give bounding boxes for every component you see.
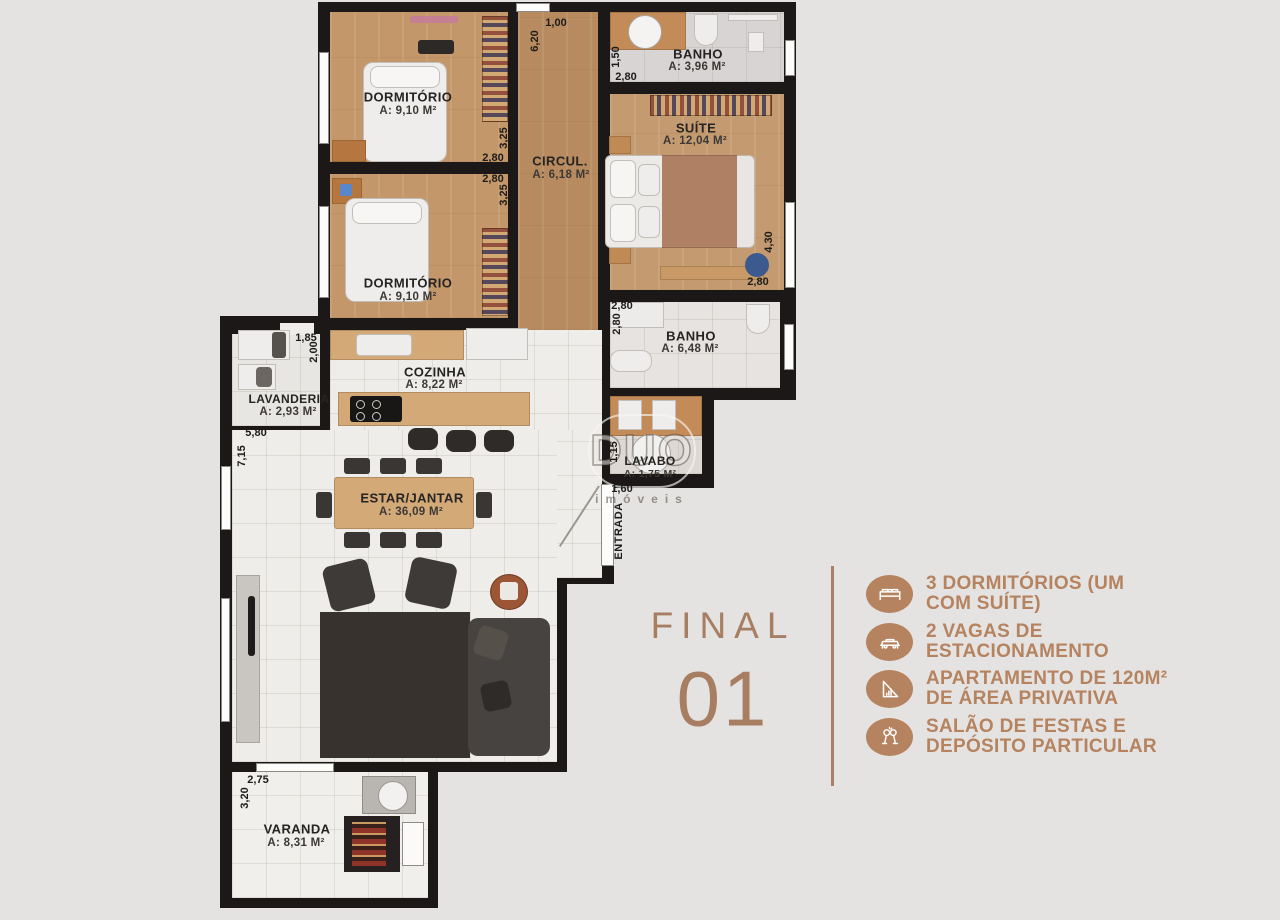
nightstand-dormitorio-1 — [332, 140, 366, 162]
window-dormitorio-1 — [319, 52, 329, 144]
dining-chair-left — [316, 492, 332, 518]
area-dormitorio-1: A: 9,10 M² — [379, 105, 436, 117]
dim-varanda-width: 2,75 — [247, 774, 268, 786]
dim-dorm2-depth: 3,25 — [498, 184, 510, 205]
side-table-tray — [500, 582, 518, 600]
ottoman-suite — [745, 253, 769, 277]
sink-cozinha — [356, 334, 412, 356]
washer-drum-lavanderia — [272, 332, 286, 358]
dining-chair-bottom-1 — [344, 532, 370, 548]
entrance-label: ENTRADA — [613, 502, 625, 559]
unit-title: FINAL — [651, 605, 796, 647]
window-suite — [785, 202, 795, 288]
dim-suite-width: 2,80 — [747, 276, 768, 288]
label-cozinha: COZINHA — [404, 365, 466, 380]
label-suite: SUÍTE — [676, 121, 716, 136]
decor-dormitorio-2 — [340, 184, 352, 196]
feature-bedrooms-line2: COM SUÍTE) — [926, 594, 1124, 614]
wardrobe-dormitorio-1 — [482, 16, 508, 122]
dining-chair-top-3 — [416, 458, 442, 474]
set-square-icon — [866, 670, 913, 708]
label-banho-1: BANHO — [673, 47, 723, 62]
feature-area-line2: DE ÁREA PRIVATIVA — [926, 689, 1167, 709]
label-lavanderia: LAVANDERIA — [249, 392, 330, 406]
pillow-dormitorio-2 — [352, 202, 422, 224]
stool-3 — [484, 430, 514, 452]
burner-1 — [356, 400, 365, 409]
dim-lavabo-width: 1,60 — [611, 483, 632, 495]
toilet-banho-1 — [694, 14, 718, 46]
wardrobe-suite — [650, 95, 772, 116]
feature-parking-line2: ESTACIONAMENTO — [926, 642, 1109, 662]
vertical-divider — [831, 566, 834, 786]
dim-dorm1-depth: 3,25 — [498, 127, 510, 148]
dim-suite-depth: 4,30 — [763, 231, 775, 252]
dresser-dormitorio-1 — [418, 40, 454, 54]
pillow-suite-2 — [610, 204, 636, 242]
label-dormitorio-2: DORMITÓRIO — [364, 276, 453, 291]
label-circulacao: CIRCUL. — [532, 154, 588, 169]
area-dormitorio-2: A: 9,10 M² — [379, 291, 436, 303]
dim-banho1-width: 2,80 — [615, 71, 636, 83]
stool-1 — [408, 428, 438, 450]
dining-chair-bottom-3 — [416, 532, 442, 548]
feature-amenities: SALÃO DE FESTAS E DEPÓSITO PARTICULAR — [866, 717, 1157, 757]
feature-amenities-line1: SALÃO DE FESTAS E — [926, 717, 1157, 737]
area-estar-jantar: A: 36,09 M² — [379, 506, 443, 518]
toilet-banho-2 — [746, 304, 770, 334]
label-estar-jantar: ESTAR/JANTAR — [360, 491, 463, 506]
window-banho-1 — [785, 40, 795, 76]
pillow-suite-1 — [610, 160, 636, 198]
dim-lavabo-depth: 1,15 — [608, 441, 620, 462]
dim-circul-top: 1,00 — [545, 17, 566, 29]
label-dormitorio-1: DORMITÓRIO — [364, 90, 453, 105]
dim-varanda-depth: 3,20 — [239, 787, 251, 808]
tv-screen — [248, 596, 255, 656]
toast-icon — [866, 718, 913, 756]
floor-plan-page: DORMITÓRIO A: 9,10 M² DORMITÓRIO A: 9,10… — [0, 0, 1280, 920]
burner-4 — [372, 412, 381, 421]
window-dormitorio-2 — [319, 206, 329, 298]
feature-area-line1: APARTAMENTO DE 120M² — [926, 669, 1167, 689]
dim-dorm1-width: 2,80 — [482, 152, 503, 164]
shower-banho-1 — [748, 32, 764, 52]
area-circulacao: A: 6,18 M² — [532, 169, 589, 181]
dining-chair-top-1 — [344, 458, 370, 474]
area-varanda: A: 8,31 M² — [267, 837, 324, 849]
dining-chair-bottom-2 — [380, 532, 406, 548]
area-banho-2: A: 6,48 M² — [661, 343, 718, 355]
area-cozinha: A: 8,22 M² — [405, 379, 462, 391]
window-circulacao-top — [516, 3, 550, 12]
dim-estar-depth: 7,15 — [236, 445, 248, 466]
door-varanda-sliding — [256, 763, 334, 772]
window-estar-lower — [221, 598, 230, 722]
watermark-subtext: imóveis — [588, 492, 696, 506]
label-banho-2: BANHO — [666, 329, 716, 344]
wardrobe-dormitorio-2 — [482, 228, 508, 316]
label-lavabo: LAVABO — [624, 454, 675, 468]
stool-2 — [446, 430, 476, 452]
area-suite: A: 12,04 M² — [663, 135, 727, 147]
sink-banho-1 — [628, 15, 662, 49]
feature-parking-line1: 2 VAGAS DE — [926, 622, 1109, 642]
tub-banho-2 — [610, 350, 652, 372]
churrasqueira-niche — [402, 822, 424, 866]
feature-bedrooms: 3 DORMITÓRIOS (UM COM SUÍTE) — [866, 574, 1124, 614]
burner-3 — [356, 412, 365, 421]
area-lavabo: A: 1,75 M² — [624, 468, 677, 480]
pillow-suite-4 — [638, 206, 660, 238]
area-lavanderia: A: 2,93 M² — [259, 406, 316, 418]
sofa-cushion-2 — [479, 679, 512, 712]
car-icon — [866, 623, 913, 661]
dim-estar-width: 5,80 — [245, 427, 266, 439]
feature-bedrooms-line1: 3 DORMITÓRIOS (UM — [926, 574, 1124, 594]
dim-dorm2-width: 2,80 — [482, 173, 503, 185]
dining-chair-top-2 — [380, 458, 406, 474]
feature-parking: 2 VAGAS DE ESTACIONAMENTO — [866, 622, 1109, 662]
nightstand-suite-top — [609, 136, 631, 154]
dim-banho2-width: 2,80 — [611, 300, 632, 312]
dim-lavanderia-depth: 2,00 — [308, 341, 320, 362]
tanque-basin-lavanderia — [256, 367, 272, 387]
pillow-dormitorio-1 — [370, 66, 440, 88]
rug-estar — [320, 612, 470, 758]
feature-amenities-line2: DEPÓSITO PARTICULAR — [926, 737, 1157, 757]
fridge-cozinha — [466, 328, 528, 360]
pillow-suite-3 — [638, 164, 660, 196]
shelf-decor-dormitorio-1 — [410, 16, 458, 23]
window-banho-2 — [784, 324, 794, 370]
churrasqueira-grill — [352, 822, 386, 866]
nightstand-suite-bottom — [609, 246, 631, 264]
towel-bar-banho-1 — [728, 14, 778, 21]
burner-2 — [372, 400, 381, 409]
feature-area: APARTAMENTO DE 120M² DE ÁREA PRIVATIVA — [866, 669, 1167, 709]
dim-banho2-depth: 2,80 — [611, 313, 623, 334]
area-banho-1: A: 3,96 M² — [668, 61, 725, 73]
dim-circul-height: 6,20 — [529, 30, 541, 51]
dining-chair-right — [476, 492, 492, 518]
dim-banho1-left: 1,50 — [610, 46, 622, 67]
label-varanda: VARANDA — [264, 822, 331, 837]
sink-varanda — [378, 781, 408, 811]
bed-icon — [866, 575, 913, 613]
unit-number: 01 — [677, 654, 770, 745]
window-estar — [221, 466, 231, 530]
armchair-2 — [404, 556, 459, 611]
